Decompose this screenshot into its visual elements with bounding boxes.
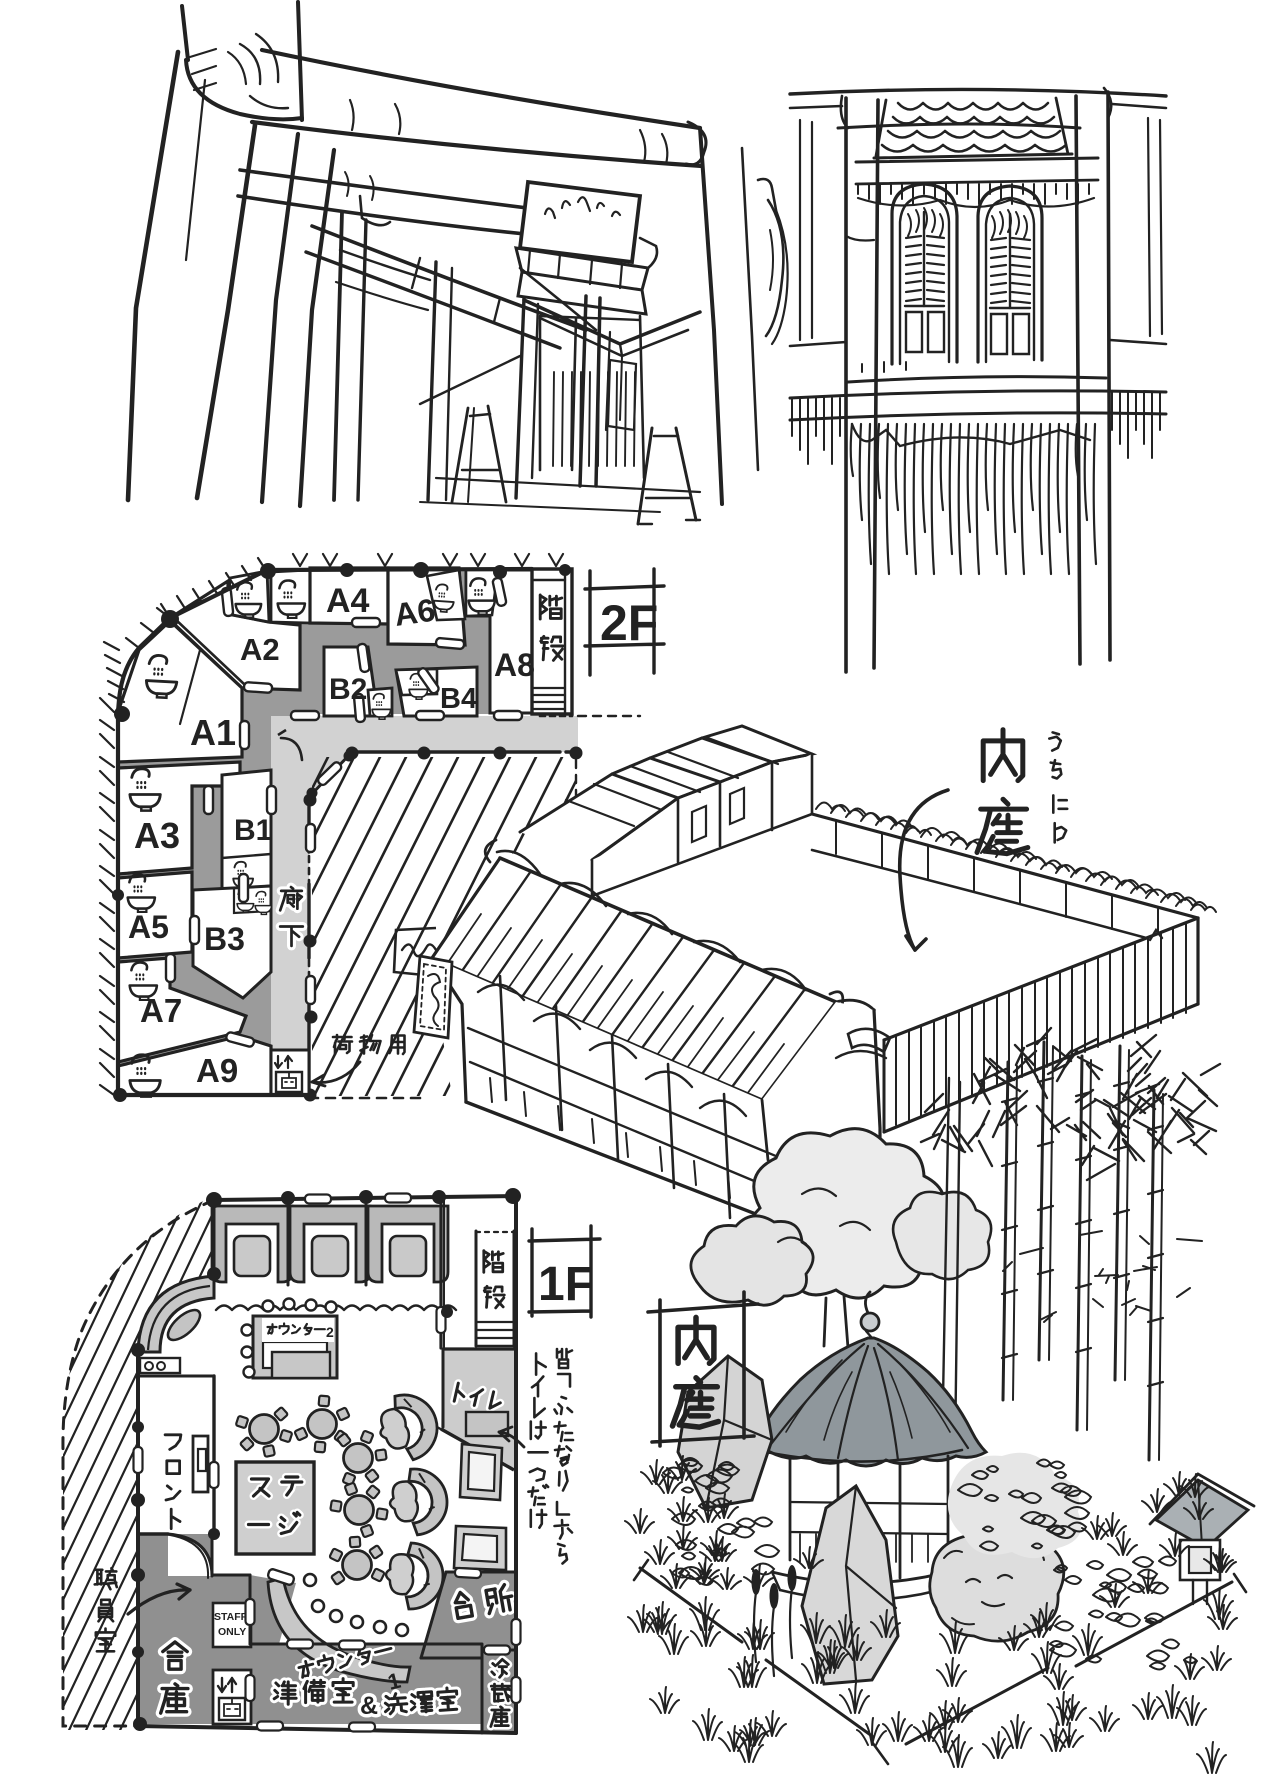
svg-text:B1: B1 bbox=[234, 814, 272, 847]
svg-text:B2: B2 bbox=[329, 673, 367, 706]
svg-text:STAFF: STAFF bbox=[214, 1611, 248, 1623]
svg-text:A7: A7 bbox=[140, 992, 182, 1029]
svg-text:ONLY: ONLY bbox=[218, 1626, 246, 1638]
svg-text:A1: A1 bbox=[190, 712, 236, 753]
svg-text:2: 2 bbox=[326, 1324, 334, 1340]
svg-text:A8: A8 bbox=[494, 647, 535, 683]
svg-text:A3: A3 bbox=[134, 815, 180, 856]
svg-text:A4: A4 bbox=[326, 582, 370, 620]
svg-text:2F: 2F bbox=[600, 595, 658, 651]
svg-text:A6: A6 bbox=[392, 592, 438, 633]
svg-text:A2: A2 bbox=[240, 632, 280, 667]
svg-text:A5: A5 bbox=[128, 909, 169, 945]
svg-text:B3: B3 bbox=[204, 921, 245, 957]
svg-text:&: & bbox=[360, 1692, 378, 1720]
svg-text:A9: A9 bbox=[196, 1052, 238, 1089]
svg-text:1F: 1F bbox=[538, 1258, 594, 1311]
svg-text:B4: B4 bbox=[440, 683, 477, 715]
